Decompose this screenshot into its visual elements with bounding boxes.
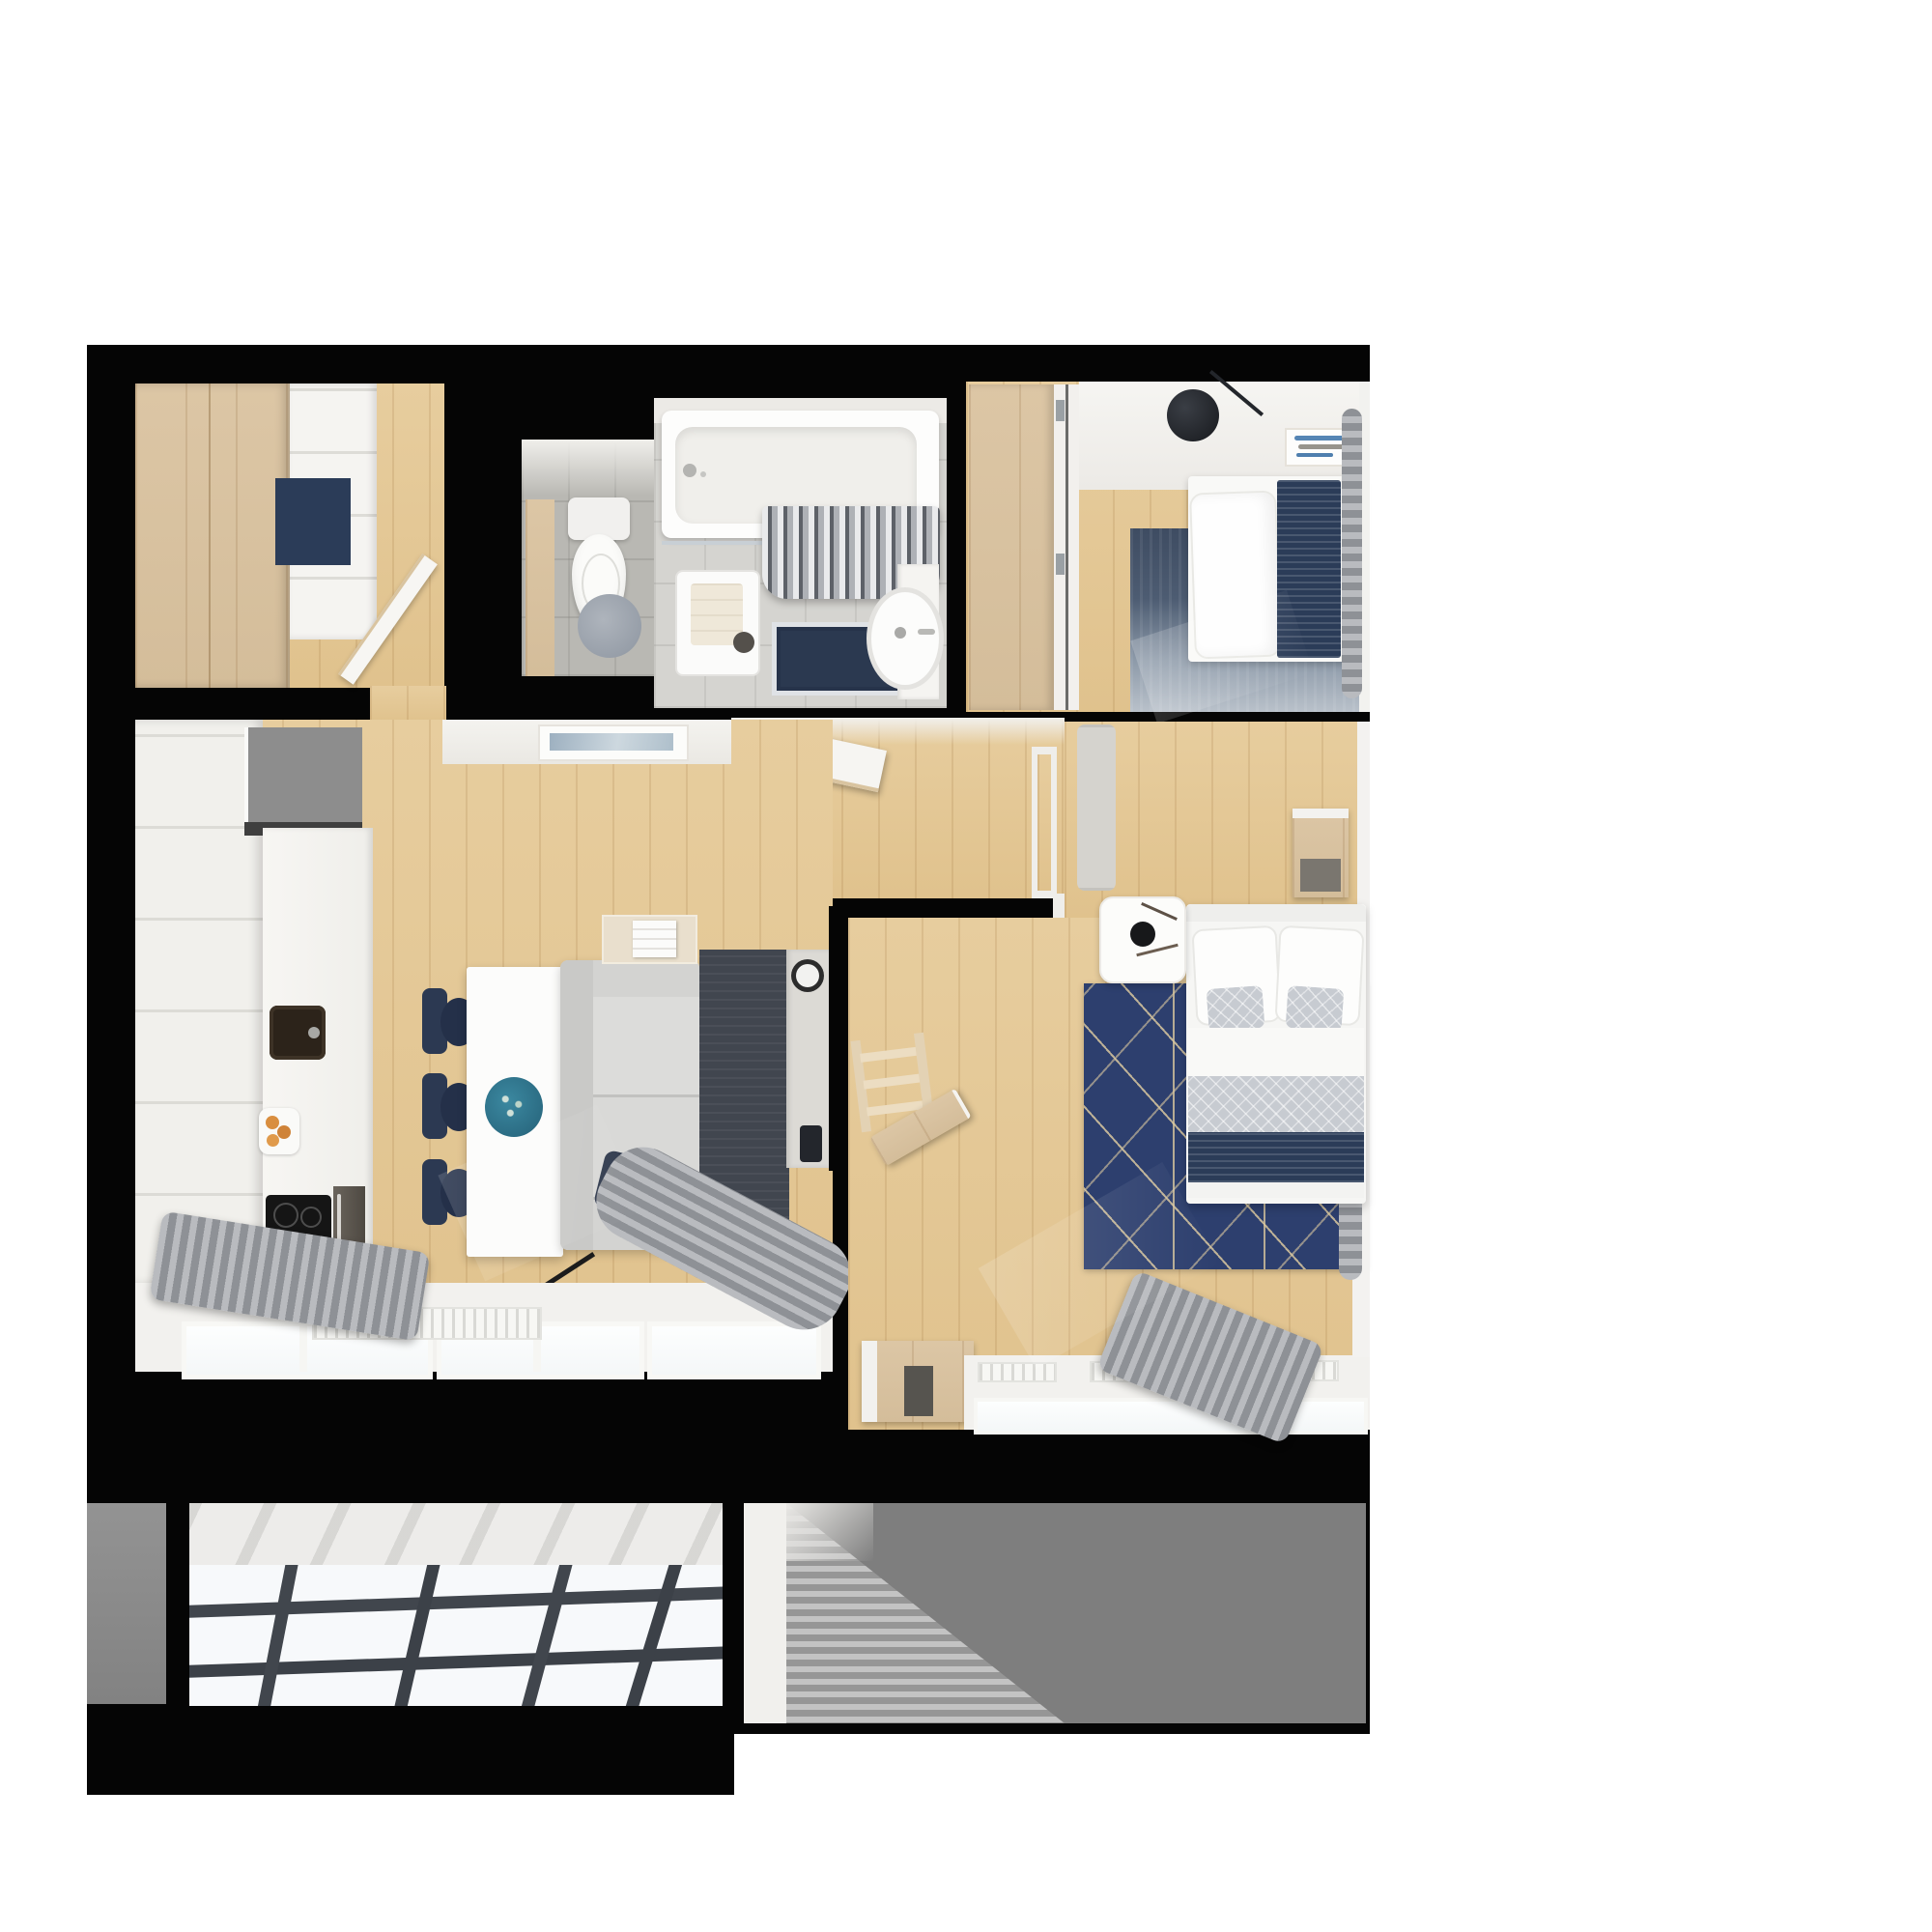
nightstand-vase bbox=[1130, 922, 1155, 947]
fruit-3 bbox=[267, 1134, 279, 1147]
wardrobe-door-gap bbox=[1065, 384, 1068, 710]
entry-hall bbox=[135, 384, 444, 688]
console-speaker-box bbox=[800, 1125, 822, 1162]
master-console-side bbox=[862, 1341, 877, 1422]
master-foot-strip bbox=[1188, 1182, 1364, 1198]
master-navy-runner bbox=[1188, 1132, 1364, 1182]
washer-drum-icon bbox=[733, 632, 754, 653]
bedroom-top-right bbox=[966, 382, 1370, 712]
living-room bbox=[135, 720, 833, 1372]
fruit-1 bbox=[266, 1116, 279, 1129]
living-wall-art bbox=[538, 724, 689, 761]
whale-art-stroke-3 bbox=[1296, 453, 1333, 457]
balcony-right bbox=[744, 1503, 1366, 1723]
sofa-cushion-1 bbox=[593, 997, 699, 1097]
wall-living-master bbox=[829, 906, 848, 1171]
balcony-right-striped-light bbox=[786, 1503, 1366, 1723]
master-duvet bbox=[1188, 1028, 1364, 1076]
entry-doormat bbox=[275, 478, 351, 565]
kitchen-gray-upper-cabinet bbox=[244, 727, 362, 836]
wc-wall-glow bbox=[522, 440, 665, 496]
sink-basin bbox=[867, 587, 944, 690]
floor-plan-stage bbox=[0, 0, 1932, 1932]
dresser-top-edge bbox=[1293, 809, 1349, 818]
wc-room bbox=[522, 440, 665, 676]
entry-wardrobe bbox=[135, 384, 290, 688]
glass-mullion-v4 bbox=[620, 1565, 682, 1706]
tv-console bbox=[786, 950, 829, 1168]
master-dresser bbox=[1293, 809, 1349, 897]
bathroom bbox=[654, 398, 947, 708]
door-hinge-top bbox=[1056, 400, 1065, 421]
kitchen-faucet-icon bbox=[308, 1027, 320, 1038]
wc-round-rug bbox=[578, 594, 641, 658]
washing-machine bbox=[675, 570, 760, 676]
bedroom2-wardrobe bbox=[969, 384, 1054, 710]
balcony-right-wall bbox=[744, 1503, 786, 1723]
balcony-right-corner-glow bbox=[786, 1503, 873, 1561]
kitchen-sink bbox=[270, 1006, 326, 1060]
balcony-left bbox=[189, 1503, 723, 1706]
sink-faucet-icon bbox=[918, 629, 935, 635]
whale-art-stroke-1 bbox=[1294, 436, 1349, 440]
door-frame-floor bbox=[1037, 754, 1051, 891]
sofa-arm-top bbox=[593, 960, 699, 997]
bath-faucet-icon bbox=[683, 464, 696, 477]
dresser-front bbox=[1300, 859, 1341, 892]
corridor-door-frame bbox=[1032, 747, 1057, 898]
master-bedroom-upper bbox=[1065, 722, 1370, 918]
ladder-rung-2 bbox=[864, 1074, 921, 1090]
master-nightstand bbox=[1099, 896, 1186, 983]
master-quilt bbox=[1188, 1076, 1364, 1132]
wall-lamp-shade bbox=[1167, 389, 1219, 441]
balcony-side-panel bbox=[87, 1503, 166, 1704]
burner-2 bbox=[300, 1207, 322, 1228]
living-window-3 bbox=[647, 1321, 821, 1379]
sofa-console bbox=[602, 915, 697, 964]
eucalyptus-sprig bbox=[496, 1089, 528, 1123]
master-double-bed bbox=[1186, 904, 1366, 1204]
wc-shelf bbox=[526, 499, 554, 676]
bedroom2-wardrobe-door bbox=[1054, 384, 1079, 710]
entry-doorway-floor bbox=[370, 686, 446, 722]
master-bottom-glass bbox=[974, 1398, 1368, 1435]
master-accent-pillow-left bbox=[1207, 985, 1265, 1032]
magazine bbox=[633, 921, 676, 957]
balcony-ledge bbox=[189, 1503, 723, 1565]
entry-wardrobe-divider bbox=[209, 384, 211, 688]
console-speaker-disc bbox=[791, 959, 824, 992]
master-right-window-strip bbox=[1357, 722, 1370, 918]
window-mullion-1 bbox=[299, 1320, 307, 1372]
burner-1 bbox=[273, 1203, 298, 1228]
master-accent-pillow-right bbox=[1286, 985, 1345, 1032]
master-headboard bbox=[1186, 904, 1366, 922]
balcony-right-floor bbox=[786, 1503, 1366, 1723]
glass-mullion-v1 bbox=[254, 1565, 298, 1706]
glass-mullion-v3 bbox=[518, 1565, 574, 1706]
master-console-item bbox=[904, 1366, 933, 1416]
whale-art-stroke-2 bbox=[1298, 444, 1345, 449]
glass-mullion-h1 bbox=[189, 1586, 723, 1618]
glass-mullion-v2 bbox=[390, 1565, 440, 1706]
wall-art-waves bbox=[550, 733, 673, 751]
ladder-rung-1 bbox=[860, 1047, 917, 1063]
master-radiator-left bbox=[978, 1362, 1057, 1382]
door-hinge-mid bbox=[1056, 554, 1065, 575]
plan-walls-foot-left bbox=[87, 1734, 734, 1795]
nightstand-branch-1 bbox=[1141, 902, 1178, 921]
sink-drain-icon bbox=[895, 627, 906, 639]
balcony-glass-floor bbox=[189, 1565, 723, 1706]
bedroom2-curtain bbox=[1342, 409, 1362, 698]
fruit-plate bbox=[259, 1108, 299, 1154]
fruit-2 bbox=[277, 1125, 291, 1139]
master-console bbox=[862, 1341, 974, 1422]
master-bench bbox=[1077, 724, 1116, 891]
